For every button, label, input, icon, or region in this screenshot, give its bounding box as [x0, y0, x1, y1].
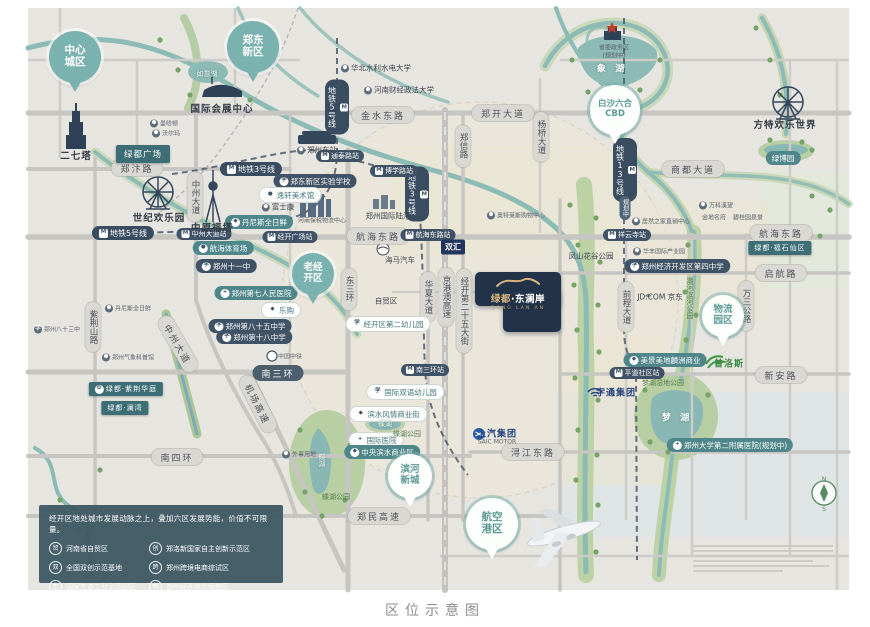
road-label: 郑民高速 — [348, 508, 410, 524]
school-icon: 学 — [34, 325, 42, 333]
poi-label-text: 曼哈顿 — [160, 119, 178, 128]
metro-line-label: M地铁5号线 — [92, 226, 154, 240]
legend-box: 经开区地处城市发展动脉之上，叠加六区发展势能，价值不可限量。 贸河南省自贸区创郑… — [39, 505, 283, 583]
road-label: 经开第二十五大街 — [457, 269, 472, 353]
metro-icon: M — [99, 229, 108, 238]
poi-label: ●万科溪望 — [699, 201, 733, 210]
poi-label: 自贸区 — [375, 296, 398, 307]
poi-label: 世纪欢乐园 — [133, 210, 186, 224]
district-badge-text: 港区 — [482, 524, 503, 536]
poi-dot-icon: ● — [105, 304, 113, 312]
metro-station-label: M经开广场站 — [263, 231, 318, 243]
poi-label: (规划中) — [603, 51, 626, 60]
poi-label-text: SAIC MOTOR — [478, 439, 516, 446]
road-label: 中州大道 — [156, 313, 201, 375]
poi-label: 金地名府 — [702, 213, 726, 222]
poi-label-text: 航海体育场 — [210, 243, 248, 254]
road-label: 前程大道 — [619, 282, 634, 332]
poi-dot-icon: ● — [282, 450, 290, 458]
map-caption: 区位示意图 — [0, 600, 870, 620]
school-icon: 学 — [373, 388, 382, 397]
poi-label: 学郑州十一中 — [196, 259, 257, 273]
poi-label-text: 丹尼斯全日鲜 — [115, 304, 151, 313]
poi-label-text: 逸轩美术馆 — [277, 190, 315, 201]
poi-label-text: 滨水风情商业街 — [367, 409, 420, 420]
poi-label: ◆丹尼斯全日鲜 — [225, 215, 293, 229]
poi-label-text: 富士康 — [272, 202, 295, 213]
road-label: 郑开大道 — [472, 105, 534, 121]
metro-line-label-text: 规划中 — [621, 199, 630, 217]
poi-dot-icon: ● — [199, 244, 208, 253]
legend-item-label: 郑州经开综合保税区 — [166, 582, 229, 592]
lake-label: 蝶湖 — [378, 419, 392, 429]
lake-label: 梦 湖 — [662, 411, 692, 424]
hospital-icon: + — [673, 441, 682, 450]
poi-label-text: 乐购 — [279, 305, 294, 316]
project-box-label-text: 绿都·福石仙区 — [754, 243, 805, 253]
district-badge-text: CBD — [605, 110, 625, 120]
flower-icon: ✿ — [95, 385, 104, 394]
poi-label-text: 方特欢乐世界 — [753, 117, 816, 131]
legend-item-3: 跨郑州跨境电商综试区 — [149, 561, 273, 574]
poi-label: 绿博园 — [766, 151, 801, 165]
poi-label-text: 郑州气象科普馆 — [112, 353, 154, 362]
metro-icon: M — [420, 190, 428, 198]
metro-station-label-text: 经开广场站 — [278, 232, 313, 242]
legend-title: 经开区地处城市发展动脉之上，叠加六区发展势能，价值不可限量。 — [49, 513, 273, 535]
road-label: 杨桥大道 — [534, 112, 549, 162]
school-icon: 学 — [202, 262, 211, 271]
road-label: 南三环 — [252, 365, 303, 381]
poi-label-text: 凤山花谷公园 — [569, 251, 614, 262]
poi-label: ●居然之家直销中心 — [632, 217, 690, 226]
school-icon: 学 — [280, 177, 289, 186]
lake-label: 蝶湖 — [317, 453, 327, 467]
shop-icon: ◆ — [356, 410, 365, 419]
road-label: 紫荆山路 — [86, 302, 101, 352]
metro-icon: M — [182, 230, 190, 238]
project-plate: 绿都·东澜岸 DONG LAN AN — [475, 272, 561, 332]
poi-label-text: 梦湖湿地公园 — [642, 378, 684, 388]
metro-station-label: M南三环站 — [401, 364, 449, 376]
badge-pointer — [68, 80, 82, 92]
school-icon: 学 — [353, 320, 362, 329]
legend-item-icon: 贸 — [49, 542, 62, 555]
legend-item-4: 生国家生态工业示范园区 — [49, 580, 145, 593]
district-badge-zhengdong-new-district: 郑东新区 — [227, 21, 279, 73]
poi-label-text: 河南保税物流中心 — [298, 216, 346, 225]
poi-label-text: 华丰国际产业园 — [643, 247, 685, 256]
poi-label: 学郑东新区实验学校 — [274, 174, 357, 188]
company-label: 普洛斯 — [714, 357, 744, 370]
poi-label: 国际会展中心 — [190, 101, 253, 115]
road-label-text: 浔江东路 — [511, 446, 555, 459]
poi-dot-icon: ● — [341, 64, 349, 72]
gold-wave-icon — [495, 275, 541, 288]
district-badge-text: 城区 — [65, 57, 86, 69]
project-box-label-text: 双汇 — [445, 242, 461, 253]
lake-label-text: 梦 湖 — [662, 411, 692, 424]
poi-label-text: 国际医院 — [367, 435, 397, 446]
poi-dot-icon: ● — [150, 119, 158, 127]
lake-label-text: 蝶湖 — [317, 453, 327, 467]
road-label: 商都大道 — [662, 161, 724, 177]
project-box-label: ✿绿都·紫荆华庭 — [89, 382, 163, 396]
road-label-text: 航海东路 — [759, 227, 803, 240]
badge-pointer — [608, 132, 622, 144]
road-label: 南四环 — [151, 449, 202, 465]
district-badge-text: 新城 — [400, 476, 419, 487]
metro-station-label-text: 南三环站 — [416, 365, 444, 375]
project-box-label-text: 绿都广场 — [124, 148, 162, 160]
poi-label-text: 海马汽车 — [385, 255, 415, 266]
poi-label-text: 沃尔玛 — [162, 129, 180, 138]
poi-label: 中原福塔 — [191, 220, 233, 234]
metro-icon: M — [615, 369, 623, 377]
road-label-text: 杨桥大道 — [535, 120, 547, 154]
poi-label-text: 万科溪望 — [709, 201, 733, 210]
road-label-text: 金水东路 — [361, 109, 405, 122]
poi-label: 碧桂园泉景 — [733, 213, 763, 222]
legend-items: 贸河南省自贸区创郑洛新国家自主创新示范区双全国双创示范基地跨郑州跨境电商综试区生… — [49, 542, 273, 593]
poi-label: ●河南财经政法大学 — [364, 85, 434, 96]
poi-label: 二七塔 — [60, 148, 92, 162]
poi-label: +郑州大学第二附属医院(规划中) — [667, 438, 793, 452]
poi-label-text: 经开区第二幼儿园 — [364, 319, 424, 330]
poi-label-text: 美景美地麟洲商业 — [641, 355, 701, 366]
road-label: 华夏大道 — [421, 272, 436, 322]
hospital-icon: + — [356, 436, 365, 445]
poi-label: ◆乐购 — [262, 303, 300, 317]
road-label-text: 商都大道 — [671, 163, 715, 176]
poi-label: +郑州第七人民医院 — [215, 286, 298, 300]
poi-dot-icon: ● — [699, 201, 707, 209]
district-badge-logistics-park: 物流园区 — [702, 295, 744, 337]
project-name-latin: DONG LAN AN — [475, 306, 561, 311]
legend-item-icon: 创 — [149, 542, 162, 555]
poi-label-text: 郑州国际陆港 — [366, 211, 411, 222]
legend-item-label: 国家生态工业示范园区 — [66, 582, 136, 592]
poi-label: ●外事用地 — [282, 450, 316, 459]
poi-label-text: 郑州第十八中学 — [233, 332, 286, 343]
poi-label-text: 丹尼斯全日鲜 — [242, 217, 287, 228]
project-box-label: 双汇 — [441, 240, 465, 255]
poi-label-text: 世纪欢乐园 — [133, 210, 186, 224]
project-box-label: 绿都广场 — [116, 145, 170, 163]
lake-label: 如意湖 — [197, 69, 218, 79]
road-label-text: 新安路 — [764, 369, 797, 382]
poi-label-text: 中原福塔 — [191, 220, 233, 234]
poi-label-text: 郑州经济开发区第四中学 — [641, 261, 724, 272]
road-label-text: 南三环 — [261, 367, 294, 380]
metro-station-label: M博学路站 — [370, 165, 418, 177]
location-map-page: N S 金水东路郑开大道郑汴路商都大道航海东路航海东路启航路南三环新安路浔江东路… — [0, 0, 870, 627]
road-label-text: 郑开大道 — [481, 107, 525, 120]
road-label: 新安路 — [755, 367, 806, 383]
poi-label-text: 二七塔 — [60, 148, 92, 162]
legend-item-2: 双全国双创示范基地 — [49, 561, 145, 574]
metro-station-label-text: 平道社区站 — [625, 368, 660, 378]
district-badge-old-jingkai-district: 老经开区 — [292, 253, 334, 295]
road-label-text: 启航路 — [764, 267, 797, 280]
poi-label-text: 郑州第七人民医院 — [232, 288, 292, 299]
road-label: 京港澳高速 — [439, 268, 454, 327]
poi-label-text: 自贸区 — [375, 296, 398, 307]
road-label: 中州大道 — [188, 172, 203, 222]
road-label-text: 中州大道 — [189, 180, 201, 214]
road-label-text: 华夏大道 — [422, 280, 434, 314]
road-label-text: 航海东路 — [356, 230, 400, 243]
poi-label-text: 国际会展中心 — [190, 101, 253, 115]
project-box-label-text: 绿都·紫荆华庭 — [106, 384, 157, 394]
poi-label: 河南保税物流中心 — [298, 216, 346, 225]
poi-label: 蝶湖公园 — [393, 429, 421, 439]
metro-line-label: M地铁5号线 — [325, 80, 349, 135]
poi-label: ●航海体育场 — [193, 241, 254, 255]
road-label-text: 机场高速 — [242, 381, 274, 426]
road-label-text: 前程大道 — [620, 290, 632, 324]
company-label-text: 普洛斯 — [714, 357, 744, 370]
legend-item-icon: 生 — [49, 580, 62, 593]
metro-line-label-text: 地铁13号线 — [615, 145, 626, 195]
badge-pointer — [306, 292, 320, 304]
district-badge-text: 新区 — [243, 47, 264, 59]
poi-label: 郑州国际陆港 — [366, 211, 411, 222]
metro-line-label-text: 地铁3号线 — [238, 164, 275, 175]
legend-item-1: 创郑洛新国家自主创新示范区 — [149, 542, 273, 555]
metro-line-label-text: 地铁3号线 — [407, 174, 418, 215]
shop-icon: ◆ — [268, 306, 277, 315]
road-label-text: 中州大道 — [161, 322, 194, 367]
district-badge-airport-port-area: 航空港区 — [466, 498, 518, 550]
poi-label: ●华北水利水电大学 — [341, 63, 411, 74]
metro-line-label: 规划中 — [620, 196, 631, 220]
legend-item-icon: 税 — [149, 580, 162, 593]
poi-dot-icon: ● — [297, 146, 305, 154]
badge-pointer — [246, 70, 260, 82]
poi-label-text: 国际双语幼儿园 — [384, 387, 437, 398]
poi-label: SAIC MOTOR — [478, 439, 516, 446]
metro-icon: M — [375, 167, 383, 175]
poi-label: ●沃尔玛 — [152, 129, 180, 138]
company-label: 宇通集团 — [596, 386, 636, 399]
poi-label: 潮河滨河公园 — [685, 277, 695, 319]
poi-label: ●郑州气象科普馆 — [102, 353, 154, 362]
poi-dot-icon: ● — [633, 247, 641, 255]
poi-dot-icon: ● — [262, 203, 270, 211]
shop-icon: ◆ — [350, 448, 359, 457]
legend-item-icon: 跨 — [149, 561, 162, 574]
metro-icon: M — [340, 103, 348, 111]
poi-label: 学郑州经济开发区第四中学 — [624, 259, 730, 273]
legend-item-label: 郑洛新国家自主创新示范区 — [166, 544, 250, 554]
district-badge-binhe-new-town: 滨河新城 — [388, 454, 432, 498]
hospital-icon: + — [221, 289, 230, 298]
lake-label: 象 湖 — [597, 62, 627, 75]
poi-label-text: 居然之家直销中心 — [642, 217, 690, 226]
poi-dot-icon: ● — [364, 86, 372, 94]
metro-station-label-text: 祥云寺站 — [618, 230, 646, 240]
badge-pointer — [716, 334, 730, 346]
project-box-label: 绿都·福石仙区 — [748, 241, 811, 255]
poi-label-text: 蝶湖公园 — [393, 429, 421, 439]
district-badge-baisha-cbd: 白沙六合CBD — [590, 85, 640, 135]
legend-item-label: 河南省自贸区 — [66, 544, 108, 554]
poi-label-text: 中国中铁 — [278, 352, 302, 361]
school-icon: 学 — [222, 333, 231, 342]
poi-label: 学国际双语幼儿园 — [367, 385, 443, 399]
poi-label: 海马汽车 — [385, 255, 415, 266]
road-label: 郑信路 — [456, 125, 471, 167]
project-box-label: 绿都·澜湾 — [101, 401, 148, 415]
poi-label-text: 郑东新区实验学校 — [291, 176, 351, 187]
road-label-text: 经开第二十五大街 — [458, 277, 470, 345]
metro-icon: M — [406, 366, 414, 374]
legend-item-label: 全国双创示范基地 — [66, 563, 122, 573]
road-label-text: 京港澳高速 — [440, 276, 452, 319]
poi-label: ◆美景美地麟洲商业 — [624, 353, 707, 367]
poi-label-text: 河南财经政法大学 — [374, 85, 434, 96]
poi-label-text: 金地名府 — [702, 213, 726, 222]
metro-line-label: M地铁13号线 — [613, 138, 637, 202]
shop-icon: ◆ — [630, 356, 639, 365]
poi-dot-icon: ● — [632, 217, 640, 225]
poi-label: 学经开区第二幼儿园 — [347, 317, 430, 331]
legend-item-0: 贸河南省自贸区 — [49, 542, 145, 555]
poi-label: ●逸轩美术馆 — [260, 188, 321, 202]
metro-line-label: M地铁3号线 — [220, 162, 282, 176]
legend-item-label: 郑州跨境电商综试区 — [166, 563, 229, 573]
company-label-text: 宇通集团 — [596, 386, 636, 399]
poi-label-text: 郑州东站 — [307, 145, 337, 156]
poi-label: 学郑州八十三中 — [34, 325, 80, 334]
district-badge-text: 开区 — [303, 274, 322, 285]
poi-label-text: 郑州大学第二附属医院(规划中) — [684, 440, 787, 451]
poi-label: JD.COM 京东 — [637, 292, 682, 303]
district-badge-central-city: 中心城区 — [49, 31, 101, 83]
poi-label-text: 华北水利水电大学 — [351, 63, 411, 74]
poi-label-text: 郑州八十三中 — [44, 325, 80, 334]
poi-label: ●华丰国际产业园 — [633, 247, 685, 256]
poi-label: 学郑州第十八中学 — [216, 330, 292, 344]
poi-label: 中国中铁 — [278, 352, 302, 361]
poi-label: 凤山花谷公园 — [569, 251, 614, 262]
metro-icon: M — [628, 166, 636, 174]
road-label-text: 郑汴路 — [120, 162, 153, 175]
poi-label: 梦湖湿地公园 — [642, 378, 684, 388]
poi-label-text: 绿博园 — [772, 153, 795, 164]
metro-station-label-text: 博学路站 — [385, 166, 413, 176]
road-label: 浔江东路 — [502, 444, 564, 460]
road-label: 机场高速 — [237, 373, 279, 436]
poi-label-text: JD.COM 京东 — [637, 292, 682, 303]
road-label-text: 南四环 — [160, 451, 193, 464]
metro-icon: M — [227, 165, 236, 174]
metro-icon: M — [406, 231, 414, 239]
metro-icon: M — [608, 231, 616, 239]
metro-line-label-text: 地铁5号线 — [110, 228, 147, 239]
road-label: 东三环 — [342, 268, 357, 310]
poi-dot-icon: ● — [102, 353, 110, 361]
poi-label-text: 蝶湖公园 — [322, 492, 350, 502]
legend-item-icon: 双 — [49, 561, 62, 574]
metro-icon: M — [268, 233, 276, 241]
metro-station-label-text: 航海东路站 — [416, 230, 451, 240]
poi-label-text: 奥特莱斯购物中心 — [497, 211, 545, 220]
poi-label: ●曼哈顿 — [150, 119, 178, 128]
poi-label-text: 潮河滨河公园 — [685, 277, 695, 319]
badge-pointer — [403, 495, 417, 507]
project-name: 绿都·东澜岸 — [475, 291, 561, 305]
poi-label-text: 郑州十一中 — [213, 261, 251, 272]
district-badge-text: 园区 — [713, 316, 732, 327]
metro-line-label-text: 地铁5号线 — [327, 87, 338, 128]
badge-pointer — [485, 547, 499, 559]
poi-label: ●丹尼斯全日鲜 — [105, 304, 151, 313]
poi-dot-icon: ● — [487, 211, 495, 219]
road-label-text: 郑民高速 — [357, 510, 401, 523]
poi-label-text: (规划中) — [603, 51, 626, 60]
poi-label: ●富士康 — [262, 202, 295, 213]
road-label-text: 东三环 — [343, 276, 355, 302]
road-label: 航海东路 — [750, 225, 812, 241]
poi-label-text: 外事用地 — [292, 450, 316, 459]
poi-label: 蝶湖公园 — [322, 492, 350, 502]
poi-label: ●奥特莱斯购物中心 — [487, 211, 545, 220]
poi-dot-icon: ● — [152, 129, 160, 137]
lake-label-text: 蝶湖 — [378, 419, 392, 429]
legend-item-5: 税郑州经开综合保税区 — [149, 580, 273, 593]
metro-station-label: M祥云寺站 — [603, 229, 651, 241]
lake-label-text: 如意湖 — [197, 69, 218, 79]
school-icon: 学 — [630, 262, 639, 271]
poi-label: ●郑州东站 — [297, 145, 337, 156]
poi-label-text: 碧桂园泉景 — [733, 213, 763, 222]
road-label: 启航路 — [755, 265, 806, 281]
poi-label: 方特欢乐世界 — [753, 117, 816, 131]
project-box-label-text: 绿都·澜湾 — [107, 403, 142, 413]
poi-dot-icon: ● — [266, 191, 275, 200]
road-label-text: 紫荆山路 — [87, 310, 99, 344]
lake-label-text: 象 湖 — [597, 62, 627, 75]
road-label: 金水东路 — [352, 107, 414, 123]
road-label-text: 郑信路 — [457, 133, 469, 159]
